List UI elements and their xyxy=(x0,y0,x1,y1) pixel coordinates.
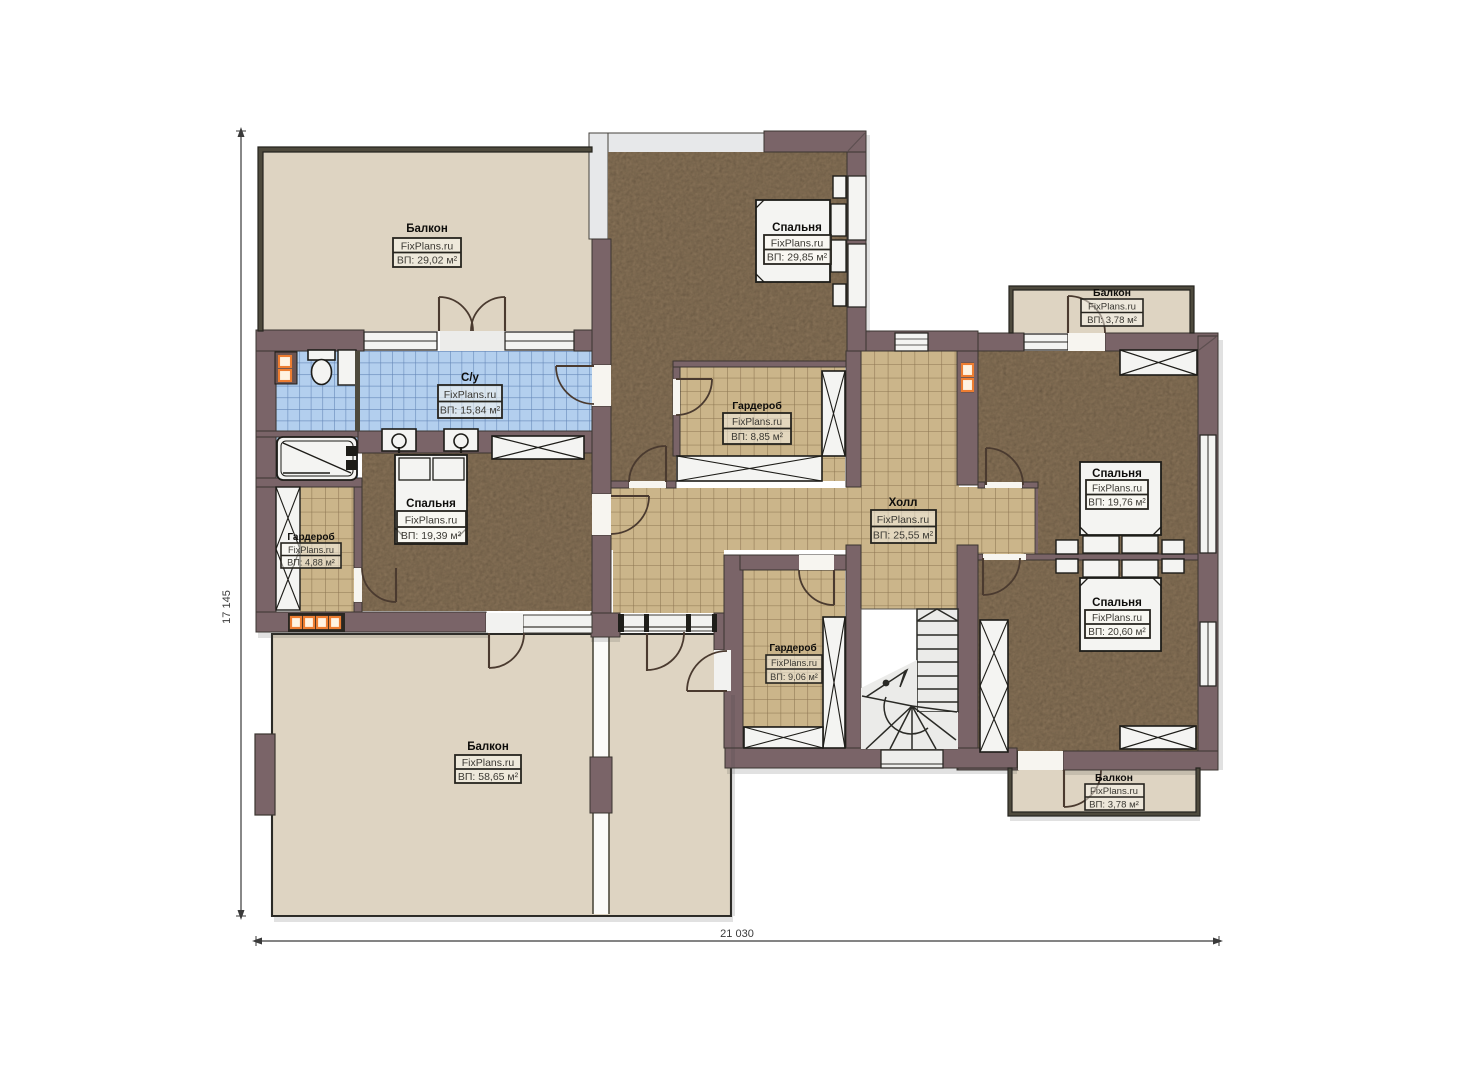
svg-text:FixPlans.ru: FixPlans.ru xyxy=(405,515,458,527)
svg-text:Гардероб: Гардероб xyxy=(769,642,816,654)
svg-text:FixPlans.ru: FixPlans.ru xyxy=(444,389,497,401)
svg-text:Холл: Холл xyxy=(889,497,918,509)
svg-text:FixPlans.ru: FixPlans.ru xyxy=(401,241,454,253)
svg-text:ВП: 58,65 м²: ВП: 58,65 м² xyxy=(458,771,519,783)
svg-text:FixPlans.ru: FixPlans.ru xyxy=(462,757,515,769)
svg-text:FixPlans.ru: FixPlans.ru xyxy=(1092,613,1142,624)
svg-text:Спальня: Спальня xyxy=(1092,597,1142,609)
svg-text:Спальня: Спальня xyxy=(406,498,456,510)
svg-text:Спальня: Спальня xyxy=(1092,468,1142,480)
svg-text:Балкон: Балкон xyxy=(467,741,509,753)
svg-text:ВП: 25,55 м²: ВП: 25,55 м² xyxy=(873,530,934,542)
svg-text:17 145: 17 145 xyxy=(221,590,233,624)
svg-text:FixPlans.ru: FixPlans.ru xyxy=(877,514,930,526)
svg-text:FixPlans.ru: FixPlans.ru xyxy=(288,545,334,555)
svg-text:FixPlans.ru: FixPlans.ru xyxy=(732,417,782,428)
svg-text:FixPlans.ru: FixPlans.ru xyxy=(771,658,817,668)
svg-text:21 030: 21 030 xyxy=(720,928,754,940)
svg-text:Гардероб: Гардероб xyxy=(732,400,782,412)
svg-text:FixPlans.ru: FixPlans.ru xyxy=(771,238,824,250)
svg-text:Гардероб: Гардероб xyxy=(287,531,334,543)
svg-text:ВП: 3,78 м²: ВП: 3,78 м² xyxy=(1089,800,1140,811)
svg-text:ВП: 20,60 м²: ВП: 20,60 м² xyxy=(1088,627,1146,638)
svg-text:FixPlans.ru: FixPlans.ru xyxy=(1092,484,1142,495)
svg-text:FixPlans.ru: FixPlans.ru xyxy=(1088,302,1136,313)
svg-text:ВП: 4,88 м²: ВП: 4,88 м² xyxy=(287,558,335,568)
svg-text:Спальня: Спальня xyxy=(772,222,822,234)
svg-text:ВП: 9,06 м²: ВП: 9,06 м² xyxy=(770,672,818,682)
svg-text:ВП: 19,39 м²: ВП: 19,39 м² xyxy=(401,530,462,542)
svg-text:FixPlans.ru: FixPlans.ru xyxy=(1090,786,1138,797)
svg-text:ВП: 29,85 м²: ВП: 29,85 м² xyxy=(767,252,828,264)
svg-text:ВП: 29,02 м²: ВП: 29,02 м² xyxy=(397,255,458,267)
svg-text:ВП: 19,76 м²: ВП: 19,76 м² xyxy=(1088,498,1146,509)
svg-text:Балкон: Балкон xyxy=(406,223,448,235)
svg-text:Балкон: Балкон xyxy=(1093,287,1131,299)
svg-text:ВП: 3,78 м²: ВП: 3,78 м² xyxy=(1087,315,1138,326)
svg-text:С/у: С/у xyxy=(461,372,480,384)
svg-text:ВП: 8,85 м²: ВП: 8,85 м² xyxy=(731,432,784,443)
svg-text:ВП: 15,84 м²: ВП: 15,84 м² xyxy=(440,405,501,417)
